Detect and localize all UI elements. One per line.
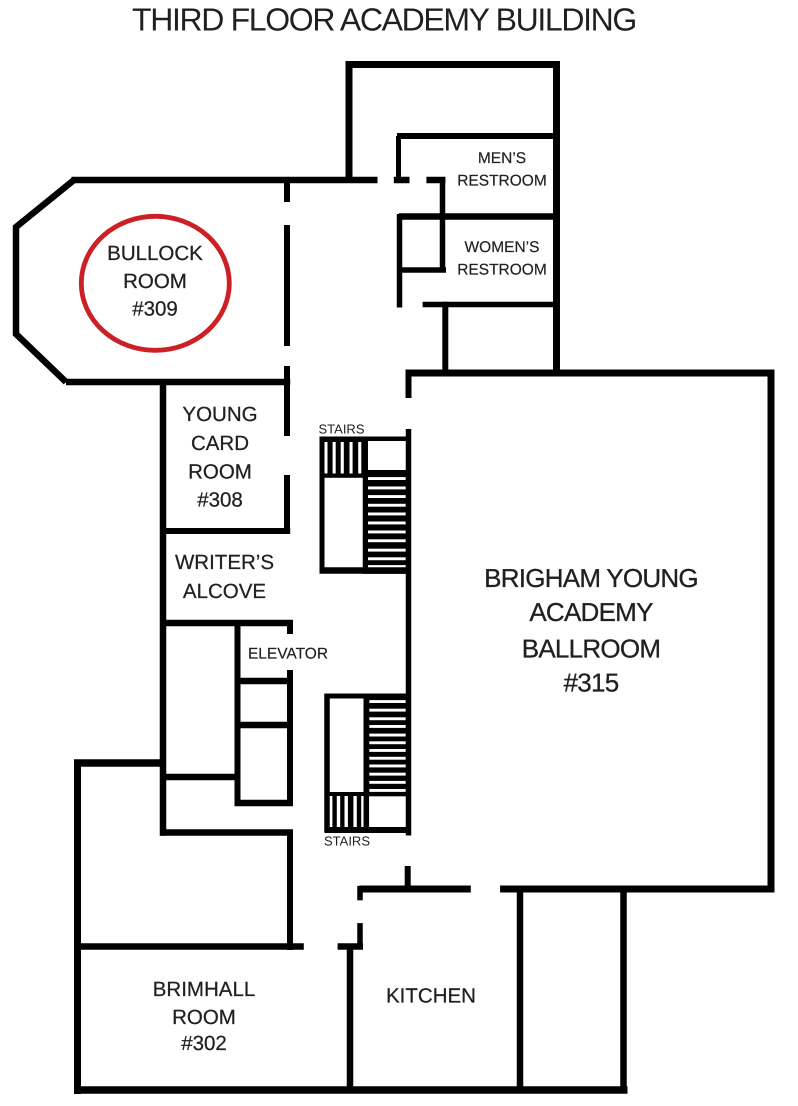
svg-text:#308: #308: [197, 488, 243, 511]
svg-text:BALLROOM: BALLROOM: [522, 634, 661, 664]
svg-text:#309: #309: [132, 298, 178, 321]
svg-text:WRITER’S: WRITER’S: [175, 551, 274, 574]
svg-text:BRIGHAM YOUNG: BRIGHAM YOUNG: [484, 563, 698, 593]
svg-text:STAIRS: STAIRS: [324, 834, 370, 849]
svg-text:ELEVATOR: ELEVATOR: [248, 645, 328, 662]
svg-text:STAIRS: STAIRS: [319, 422, 365, 437]
svg-text:CARD: CARD: [191, 432, 249, 455]
svg-text:BULLOCK: BULLOCK: [107, 242, 203, 265]
svg-text:ACADEMY: ACADEMY: [529, 597, 653, 627]
svg-text:RESTROOM: RESTROOM: [457, 262, 547, 279]
svg-text:YOUNG: YOUNG: [182, 403, 257, 426]
svg-text:ROOM: ROOM: [123, 270, 187, 293]
svg-text:BRIMHALL: BRIMHALL: [153, 978, 256, 1001]
svg-text:ALCOVE: ALCOVE: [183, 580, 266, 603]
svg-text:MEN’S: MEN’S: [478, 150, 526, 167]
svg-text:ROOM: ROOM: [172, 1006, 236, 1029]
svg-text:THIRD FLOOR ACADEMY BUILDING: THIRD FLOOR ACADEMY BUILDING: [132, 2, 636, 38]
svg-text:WOMEN’S: WOMEN’S: [465, 239, 540, 256]
svg-text:KITCHEN: KITCHEN: [386, 984, 476, 1007]
svg-text:#302: #302: [181, 1032, 227, 1055]
svg-text:ROOM: ROOM: [188, 461, 252, 484]
svg-text:#315: #315: [564, 668, 619, 698]
svg-text:RESTROOM: RESTROOM: [457, 173, 547, 190]
